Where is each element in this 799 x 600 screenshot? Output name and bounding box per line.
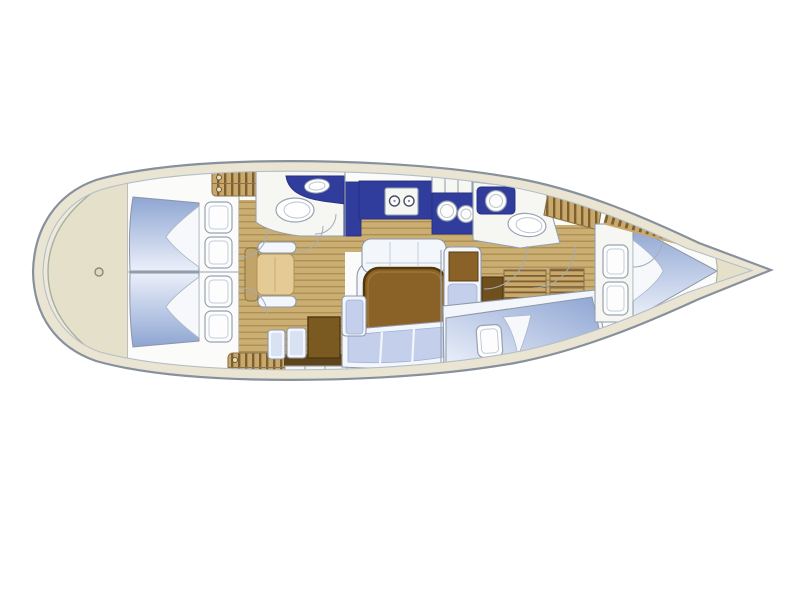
aft-head xyxy=(256,168,345,236)
canvas xyxy=(0,0,799,600)
sink xyxy=(437,201,457,221)
pillow xyxy=(603,245,628,278)
chart-table xyxy=(308,317,340,358)
stove xyxy=(385,188,418,215)
sink xyxy=(458,206,475,223)
settee-end-locker xyxy=(449,252,478,281)
deck-fitting-icon xyxy=(95,268,103,276)
pillow xyxy=(205,276,232,307)
sink xyxy=(486,191,507,212)
toilet xyxy=(276,198,314,222)
counter-left xyxy=(344,182,361,236)
drawer-unit xyxy=(550,269,584,287)
yacht-floorplan xyxy=(0,0,799,600)
pillow xyxy=(476,324,503,358)
settee-left-cushion xyxy=(346,300,363,334)
pillow xyxy=(205,311,232,342)
pillow xyxy=(205,237,232,268)
pillow xyxy=(603,282,628,315)
pillow xyxy=(205,202,232,233)
